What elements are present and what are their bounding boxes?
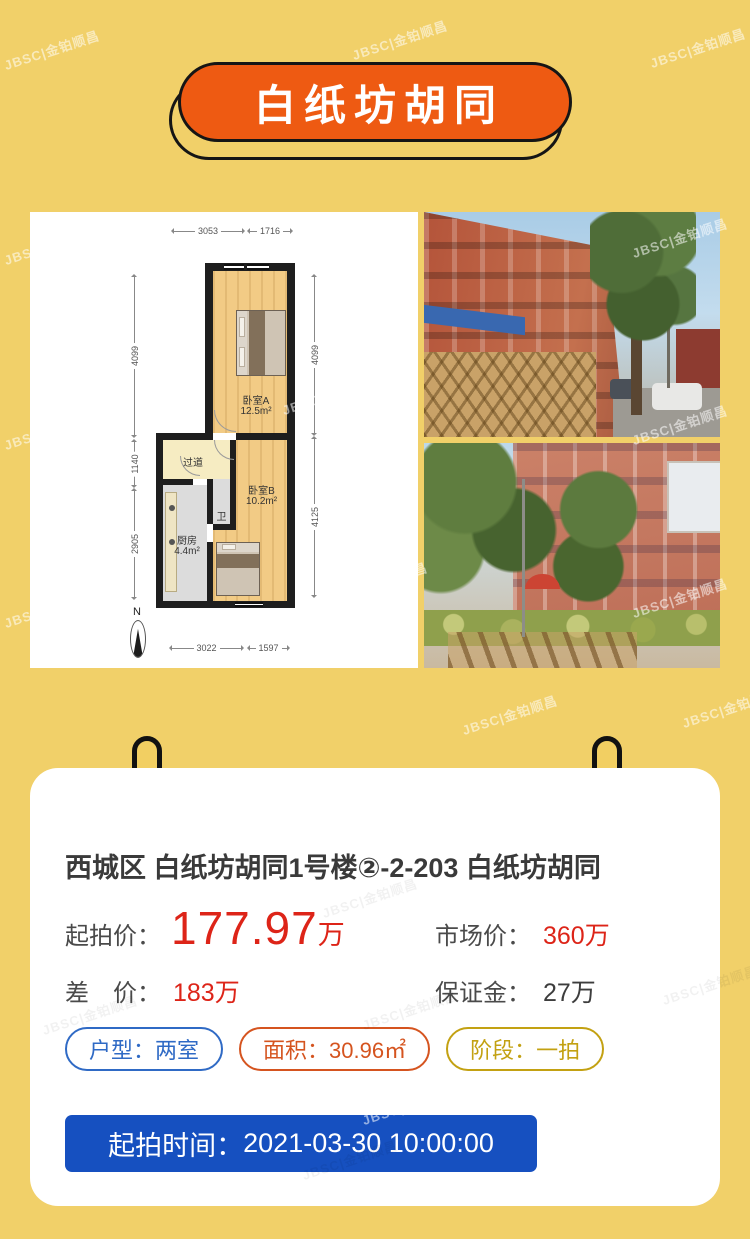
start-time-label: 起拍时间： — [108, 1124, 243, 1163]
wall-left-upper — [205, 263, 213, 440]
photo1-lattice-fence — [424, 352, 596, 438]
watermark: JBSC|金铂顺昌 — [349, 15, 449, 64]
start-price-value: 177.97 — [171, 901, 318, 955]
badge-layout: 户型： 两室 — [65, 1027, 223, 1071]
listing-title: 西城区 白纸坊胡同1号楼②-2-203 白纸坊胡同 — [65, 846, 685, 885]
deposit-label: 保证金： — [435, 973, 531, 1008]
badge-area: 面积： 30.96㎡ — [239, 1027, 430, 1071]
photo2-pole — [522, 479, 526, 637]
wall-bath-bottom — [213, 524, 236, 530]
auction-listing-page: 白纸坊胡同 3053 1716 4099 1140 2905 4099 4125… — [0, 0, 750, 1239]
watermark: JBSC|金铂顺昌 — [1, 25, 101, 74]
listing-info-card: 西城区 白纸坊胡同1号楼②-2-203 白纸坊胡同 起拍价： 177.97 万 … — [30, 768, 720, 1206]
wall-mid-right — [236, 433, 295, 440]
badge-stage: 阶段： 一拍 — [446, 1027, 604, 1071]
market-price-label: 市场价： — [435, 916, 531, 951]
compass-icon — [130, 620, 146, 658]
title-banner: 白纸坊胡同 — [178, 62, 572, 142]
badge-row: 户型： 两室 面积： 30.96㎡ 阶段： 一拍 — [65, 1027, 685, 1071]
wall-kitchen-top — [163, 479, 193, 485]
label-hallway: 过道 — [163, 454, 223, 469]
label-kitchen: 厨房 — [165, 532, 209, 547]
dim-right-1: 4099 — [314, 275, 315, 435]
photo2-wood-fence — [448, 632, 637, 668]
compass-north-label: N — [133, 606, 141, 618]
banner-pill: 白纸坊胡同 — [178, 62, 572, 142]
dim-left-1: 4099 — [134, 275, 135, 437]
banner-title: 白纸坊胡同 — [246, 72, 504, 133]
diff-price-value: 183万 — [173, 973, 240, 1009]
photo1-tree — [590, 212, 697, 374]
floorplan-panel: 3053 1716 4099 1140 2905 4099 4125 3022 … — [30, 212, 418, 668]
photo2-balcony — [667, 461, 720, 533]
bed-b — [216, 542, 260, 596]
dim-left-2: 1140 — [134, 440, 135, 487]
label-bedroom-b-area: 10.2m² — [234, 496, 289, 507]
wall-bottom — [156, 601, 295, 608]
start-time-button[interactable]: 起拍时间： 2021-03-30 10:00:00 — [65, 1115, 537, 1172]
wall-mid-left — [156, 433, 213, 440]
start-price-unit: 万 — [318, 913, 345, 952]
dim-left-3: 2905 — [134, 489, 135, 599]
photo2-tree-center — [548, 461, 649, 623]
deposit-value: 27万 — [543, 973, 596, 1009]
market-price-value: 360万 — [543, 916, 610, 952]
photo-street-view — [424, 212, 720, 437]
label-bath: 卫 — [213, 508, 230, 523]
watermark: JBSC|金铂顺昌 — [459, 690, 559, 739]
bed-a — [236, 310, 286, 376]
start-time-value: 2021-03-30 10:00:00 — [243, 1128, 494, 1159]
wall-left-lower — [156, 433, 163, 608]
window-bottom — [235, 602, 263, 607]
watermark: JBSC|金铂顺昌 — [647, 23, 747, 72]
dim-top-1: 3053 — [172, 231, 244, 232]
dim-right-2: 4125 — [314, 437, 315, 597]
label-kitchen-area: 4.4m² — [165, 546, 209, 557]
label-bedroom-a: 卧室A — [226, 392, 286, 407]
window-top-2 — [247, 264, 269, 270]
label-bedroom-a-area: 12.5m² — [226, 406, 286, 417]
start-price-label: 起拍价： — [65, 916, 161, 951]
photo1-car-white — [652, 383, 702, 410]
dim-top-2: 1716 — [248, 231, 292, 232]
label-bedroom-b: 卧室B — [234, 482, 289, 497]
watermark: JBSC|金铂顺昌 — [679, 683, 750, 732]
secondary-row: 差 价： 183万 保证金： 27万 — [65, 973, 685, 1007]
diff-price-label: 差 价： — [65, 973, 161, 1008]
photo2-tree-left — [424, 443, 563, 616]
dim-bottom-2: 1597 — [248, 648, 289, 649]
dim-bottom-1: 3022 — [170, 648, 243, 649]
price-row: 起拍价： 177.97 万 市场价： 360万 — [65, 901, 685, 957]
window-top-1 — [224, 264, 244, 270]
photo-courtyard-view — [424, 443, 720, 668]
